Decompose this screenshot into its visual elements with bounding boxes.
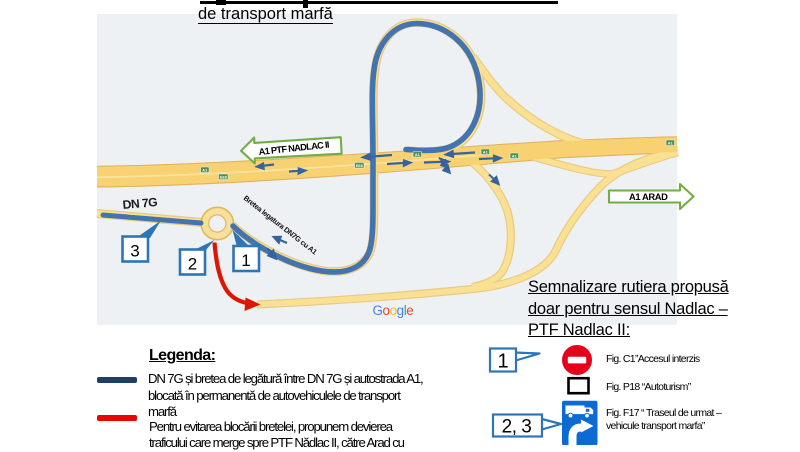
svg-text:1: 1 <box>241 251 250 270</box>
svg-text:Google: Google <box>373 303 414 318</box>
svg-text:E68: E68 <box>356 163 364 168</box>
svg-text:2: 2 <box>188 255 197 274</box>
svg-text:E68: E68 <box>220 174 228 179</box>
svg-text:2, 3: 2, 3 <box>502 417 532 438</box>
svg-text:3: 3 <box>130 242 139 261</box>
svg-text:A1: A1 <box>483 149 489 154</box>
svg-text:A1: A1 <box>668 140 674 145</box>
svg-text:A1: A1 <box>415 152 421 157</box>
svg-text:A1: A1 <box>202 167 208 172</box>
svg-text:A1: A1 <box>512 153 518 158</box>
svg-text:A1 ARAD: A1 ARAD <box>629 191 668 202</box>
svg-text:1: 1 <box>497 351 508 373</box>
